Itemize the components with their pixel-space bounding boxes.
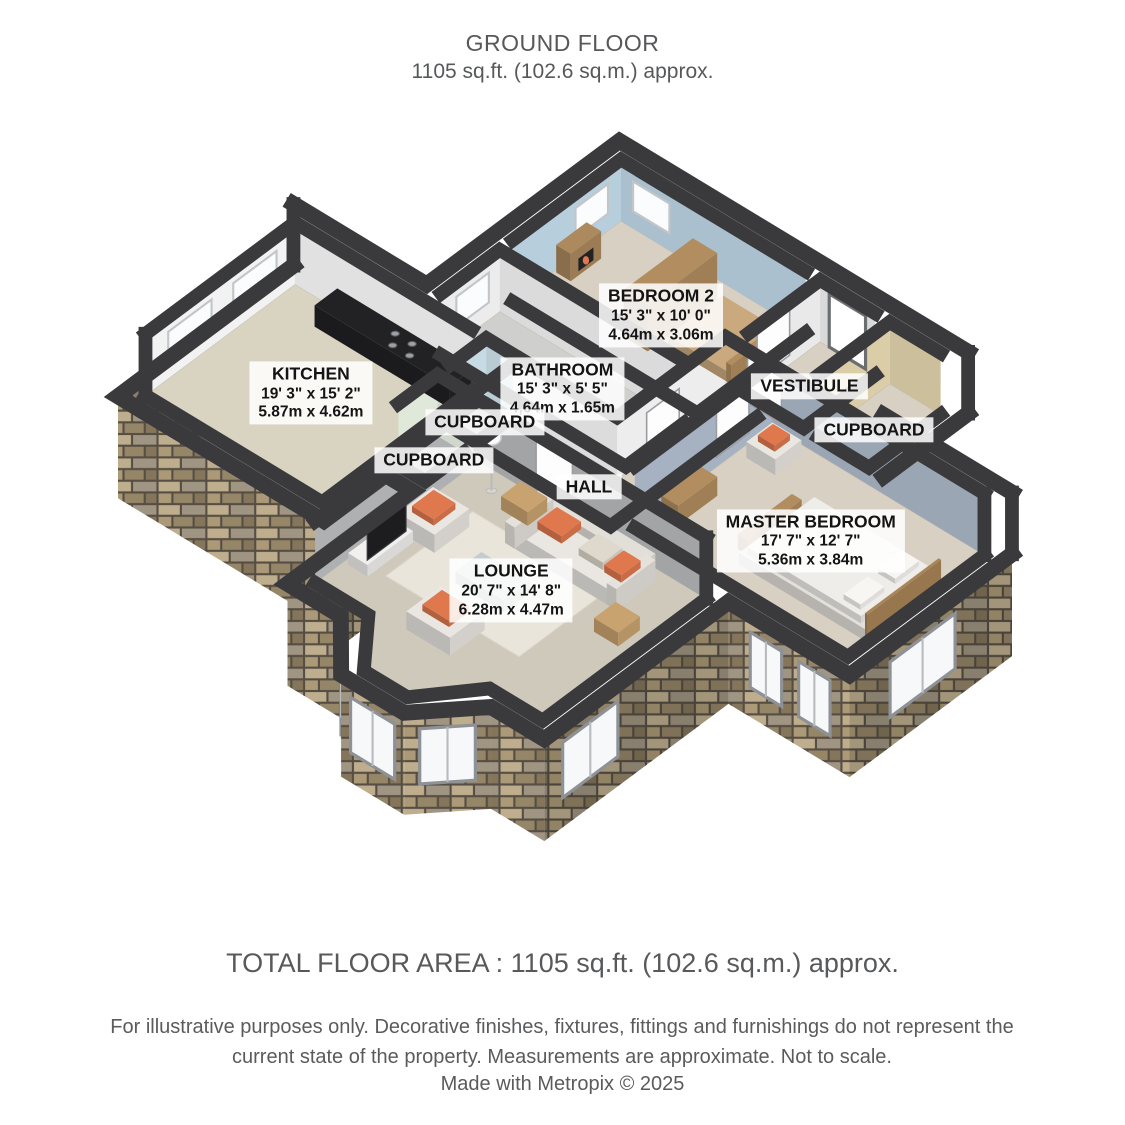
room-label-cupboard-mid: CUPBOARD	[425, 410, 544, 435]
room-label-lounge: LOUNGE20' 7" x 14' 8"6.28m x 4.47m	[450, 559, 573, 622]
disclaimer-text: For illustrative purposes only. Decorati…	[82, 1012, 1042, 1072]
room-label-bedroom2: BEDROOM 215' 3" x 10' 0"4.64m x 3.06m	[599, 284, 723, 347]
room-label-vestibule: VESTIBULE	[751, 374, 867, 399]
room-label-kitchen: KITCHEN19' 3" x 15' 2"5.87m x 4.62m	[249, 362, 372, 425]
room-label-cupboard-low: CUPBOARD	[374, 448, 493, 473]
room-label-cupboard-top: CUPBOARD	[814, 417, 933, 442]
room-label-master-bedroom: MASTER BEDROOM17' 7" x 12' 7"5.36m x 3.8…	[717, 509, 905, 572]
total-floor-area: TOTAL FLOOR AREA : 1105 sq.ft. (102.6 sq…	[0, 948, 1125, 979]
room-label-hall: HALL	[557, 474, 622, 499]
credit-text: Made with Metropix © 2025	[0, 1073, 1125, 1096]
floorplan-page: GROUND FLOOR 1105 sq.ft. (102.6 sq.m.) a…	[0, 0, 1125, 1125]
